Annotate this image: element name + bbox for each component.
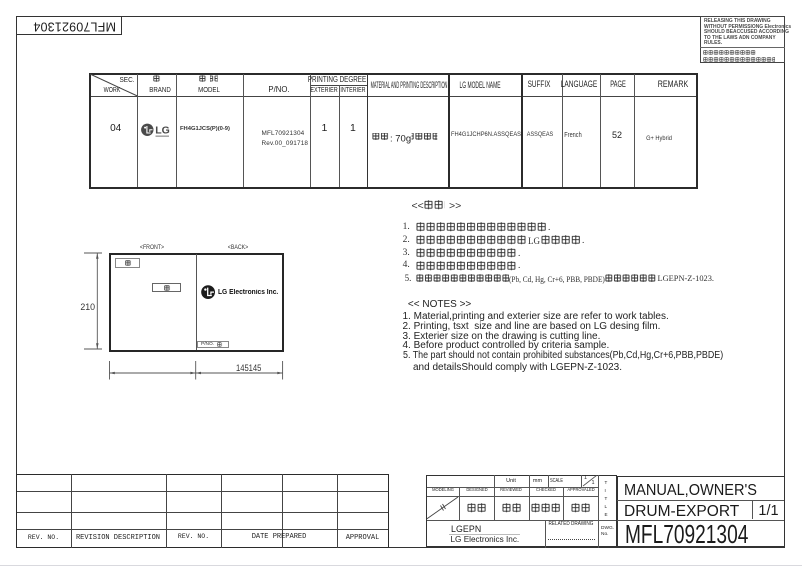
svg-text:: 70g: : 70g: [390, 133, 411, 144]
svg-text:LG: LG: [155, 124, 170, 136]
